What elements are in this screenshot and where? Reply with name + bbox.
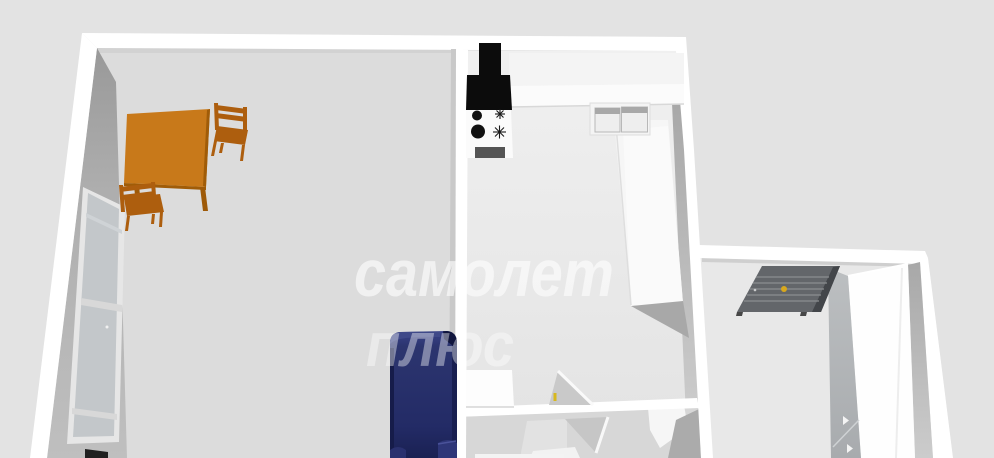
svg-text:плюс: плюс <box>366 311 514 380</box>
svg-text:самолет: самолет <box>354 236 614 310</box>
